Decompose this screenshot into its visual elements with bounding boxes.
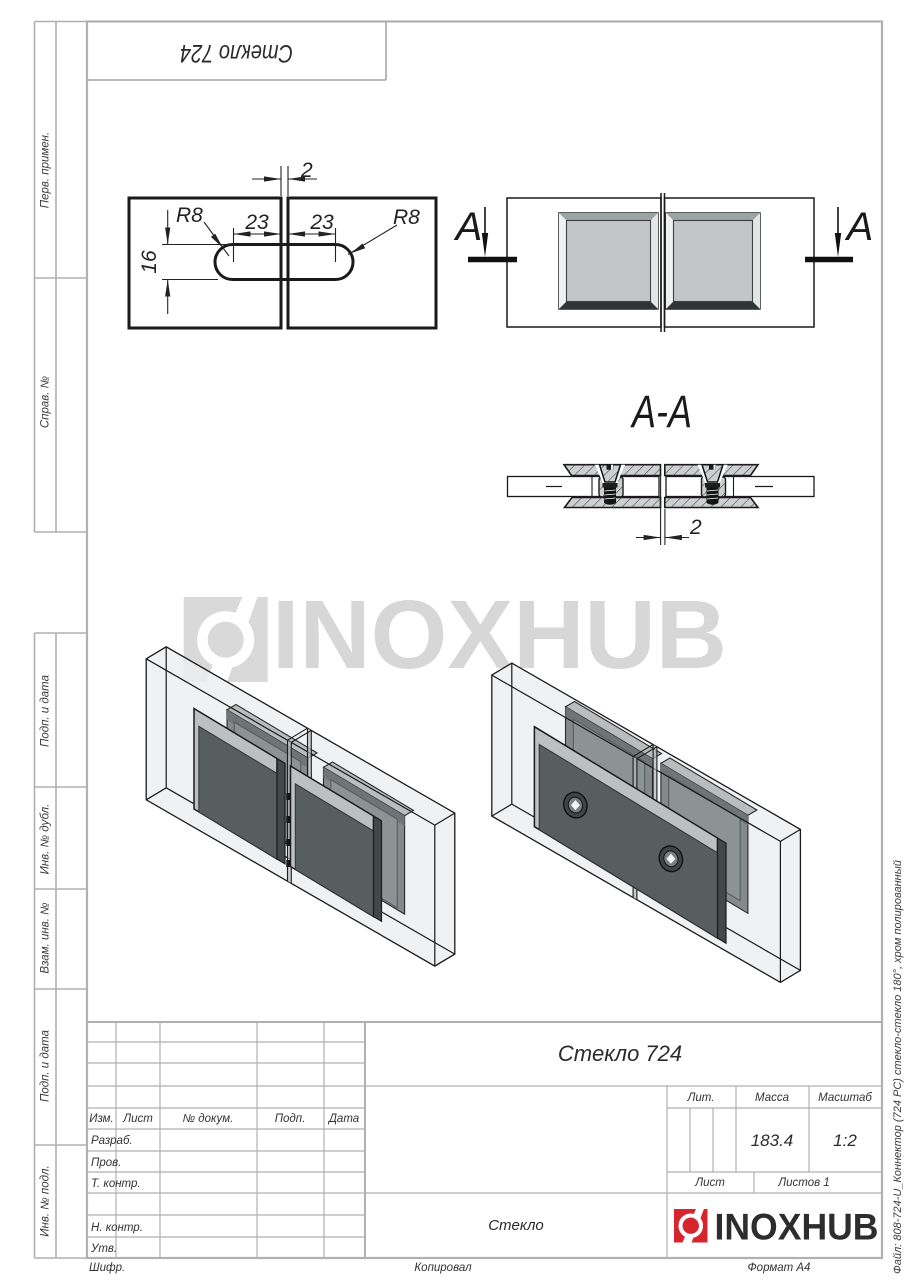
svg-text:Разраб.: Разраб. [91, 1135, 133, 1147]
svg-text:Н. контр.: Н. контр. [91, 1222, 143, 1234]
svg-text:Шифр.: Шифр. [89, 1262, 125, 1274]
svg-text:Лит.: Лит. [687, 1092, 715, 1104]
svg-text:Перв. примен.: Перв. примен. [40, 132, 52, 208]
svg-text:23: 23 [309, 211, 334, 234]
svg-text:Инв. № дубл.: Инв. № дубл. [40, 804, 52, 875]
svg-text:Дата: Дата [327, 1113, 359, 1125]
svg-text:Стекло: Стекло [488, 1217, 544, 1234]
svg-text:Копировал: Копировал [414, 1262, 472, 1274]
svg-text:23: 23 [244, 211, 269, 234]
svg-text:Масштаб: Масштаб [818, 1092, 872, 1104]
svg-text:A: A [454, 205, 483, 249]
svg-text:Инв. № подл.: Инв. № подл. [40, 1165, 52, 1236]
svg-text:Стекло 724: Стекло 724 [558, 1041, 682, 1066]
svg-text:1:2: 1:2 [833, 1131, 857, 1150]
svg-text:Лист: Лист [694, 1177, 725, 1189]
svg-text:№ докум.: № докум. [183, 1113, 234, 1125]
svg-text:Подп.: Подп. [275, 1113, 306, 1125]
svg-text:2: 2 [300, 159, 313, 182]
svg-text:Справ. №: Справ. № [40, 375, 52, 428]
svg-text:A-A: A-A [630, 386, 692, 437]
svg-text:Подп. и дата: Подп. и дата [40, 1030, 52, 1102]
svg-text:Масса: Масса [755, 1092, 789, 1104]
svg-text:Взам. инв. №: Взам. инв. № [40, 902, 52, 974]
svg-text:R8: R8 [393, 206, 420, 229]
svg-text:Лист: Лист [122, 1113, 153, 1125]
svg-text:Стекло 724: Стекло 724 [180, 39, 293, 67]
svg-text:Подп. и дата: Подп. и дата [40, 675, 52, 747]
svg-text:R8: R8 [176, 204, 203, 227]
svg-text:Листов 1: Листов 1 [777, 1177, 829, 1189]
svg-text:Т. контр.: Т. контр. [91, 1178, 141, 1190]
svg-text:Файл: 808-724-U_Коннектор (724: Файл: 808-724-U_Коннектор (724 РС) стекл… [892, 860, 904, 1274]
svg-text:2: 2 [689, 516, 702, 539]
svg-text:Изм.: Изм. [89, 1113, 114, 1125]
svg-text:16: 16 [138, 250, 161, 274]
svg-text:183.4: 183.4 [751, 1131, 794, 1150]
svg-text:INOXHUB: INOXHUB [715, 1206, 879, 1248]
svg-text:Формат А4: Формат А4 [748, 1262, 811, 1274]
svg-text:Утв.: Утв. [90, 1243, 117, 1255]
svg-text:Пров.: Пров. [91, 1157, 121, 1169]
svg-text:A: A [845, 205, 874, 249]
